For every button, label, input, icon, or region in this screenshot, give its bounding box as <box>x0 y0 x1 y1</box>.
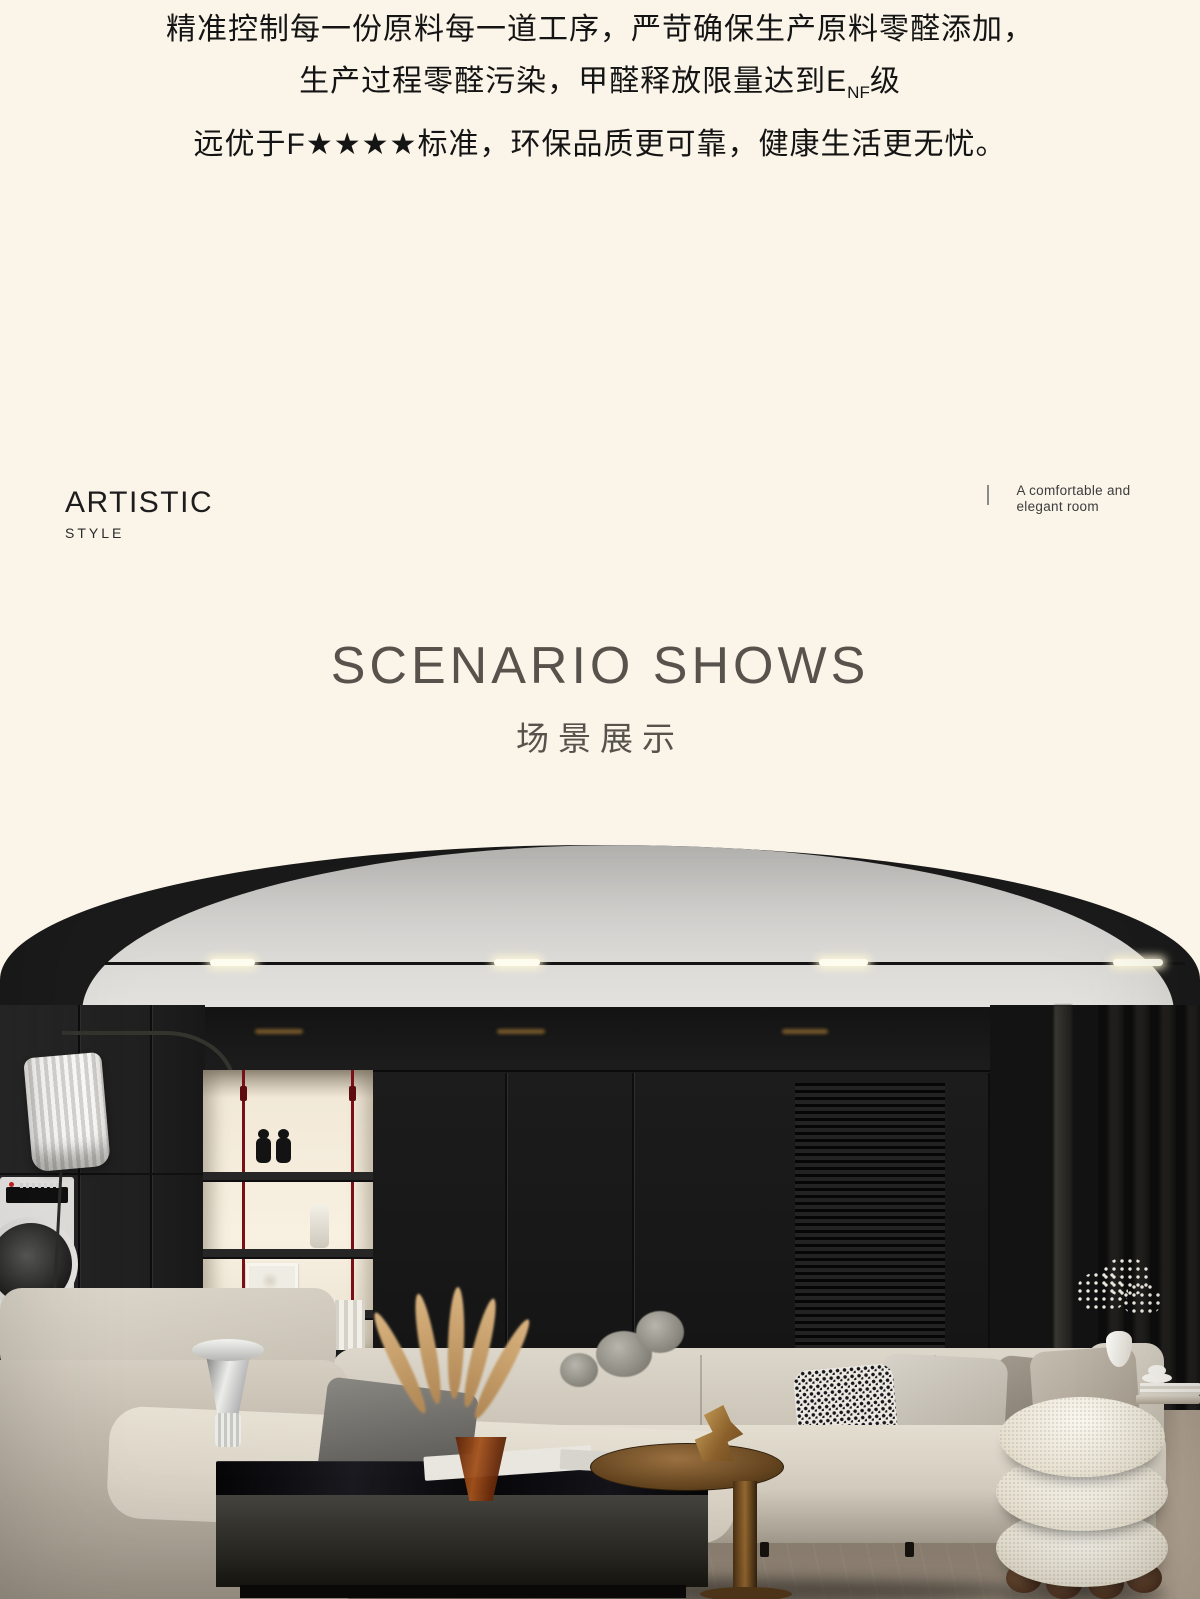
intro-line-3: 远优于F★★★★标准，环保品质更可靠，健康生活更无忧。 <box>0 119 1200 171</box>
scenario-heading: SCENARIO SHOWS 场景展示 <box>0 636 1200 760</box>
recessed-light <box>255 1029 303 1034</box>
bronze-table-pedestal <box>733 1481 757 1599</box>
artistic-subtitle: STYLE <box>65 525 213 541</box>
tagline-line-2: elegant room <box>1017 499 1131 515</box>
ceiling-track-light <box>105 962 1185 965</box>
coffee-cup <box>1148 1365 1166 1376</box>
cabinet-seam <box>0 1173 205 1175</box>
track-light-glow <box>494 959 540 966</box>
product-detail-page: 精准控制每一份原料每一道工序，严苛确保生产原料零醛添加， 生产过程零醛污染，甲醛… <box>0 0 1200 1599</box>
bronze-table-base <box>700 1587 792 1599</box>
boucle-pouf <box>996 1397 1168 1599</box>
sofa-leg <box>760 1542 769 1557</box>
silver-lamp-base <box>215 1413 241 1447</box>
silver-lamp-disc <box>192 1339 264 1361</box>
track-light-glow <box>819 959 868 966</box>
artistic-title: ARTISTIC <box>65 486 213 520</box>
washer-power-led <box>9 1182 14 1187</box>
tagline-line-1: A comfortable and <box>1017 483 1131 499</box>
track-light-glow <box>210 959 255 966</box>
track-light-glow <box>1113 959 1163 966</box>
intro-line-1: 精准控制每一份原料每一道工序，严苛确保生产原料零醛添加， <box>0 4 1200 56</box>
artistic-heading: ARTISTIC STYLE <box>65 486 213 541</box>
babys-breath-flowers <box>1122 1283 1162 1317</box>
coffee-table-plinth <box>240 1585 686 1598</box>
hand-sculpture <box>310 1204 329 1248</box>
red-cable-connector <box>349 1086 356 1101</box>
recessed-light <box>782 1029 828 1034</box>
intro-line-2: 生产过程零醛污染，甲醛释放限量达到ENF级 <box>0 56 1200 119</box>
intro-copy: 精准控制每一份原料每一道工序，严苛确保生产原料零醛添加， 生产过程零醛污染，甲醛… <box>0 4 1200 171</box>
book-stack <box>1140 1383 1200 1395</box>
niche-shelf <box>203 1172 373 1182</box>
enf-subscript: NF <box>847 83 870 102</box>
sofa-leg <box>905 1542 914 1557</box>
floor-lamp-shade <box>23 1052 111 1172</box>
coffee-table-front <box>216 1495 708 1587</box>
scenario-title-en: SCENARIO SHOWS <box>0 636 1200 696</box>
dried-flowers <box>560 1353 598 1387</box>
scenario-title-cn: 场景展示 <box>0 712 1200 760</box>
bear-figurine <box>276 1138 291 1163</box>
pouf-ring <box>999 1397 1165 1477</box>
tagline-divider <box>987 485 989 505</box>
bear-figurine <box>256 1138 271 1163</box>
ribbed-slat-panel <box>795 1083 945 1358</box>
washer-display <box>20 1183 60 1188</box>
dried-flowers <box>636 1311 684 1353</box>
room-tagline: A comfortable and elegant room <box>987 483 1130 515</box>
red-cable-connector <box>240 1086 247 1101</box>
ceiling <box>82 845 1174 1013</box>
niche-shelf <box>203 1249 373 1259</box>
recessed-light <box>497 1029 545 1034</box>
scenario-room-image <box>0 845 1200 1599</box>
